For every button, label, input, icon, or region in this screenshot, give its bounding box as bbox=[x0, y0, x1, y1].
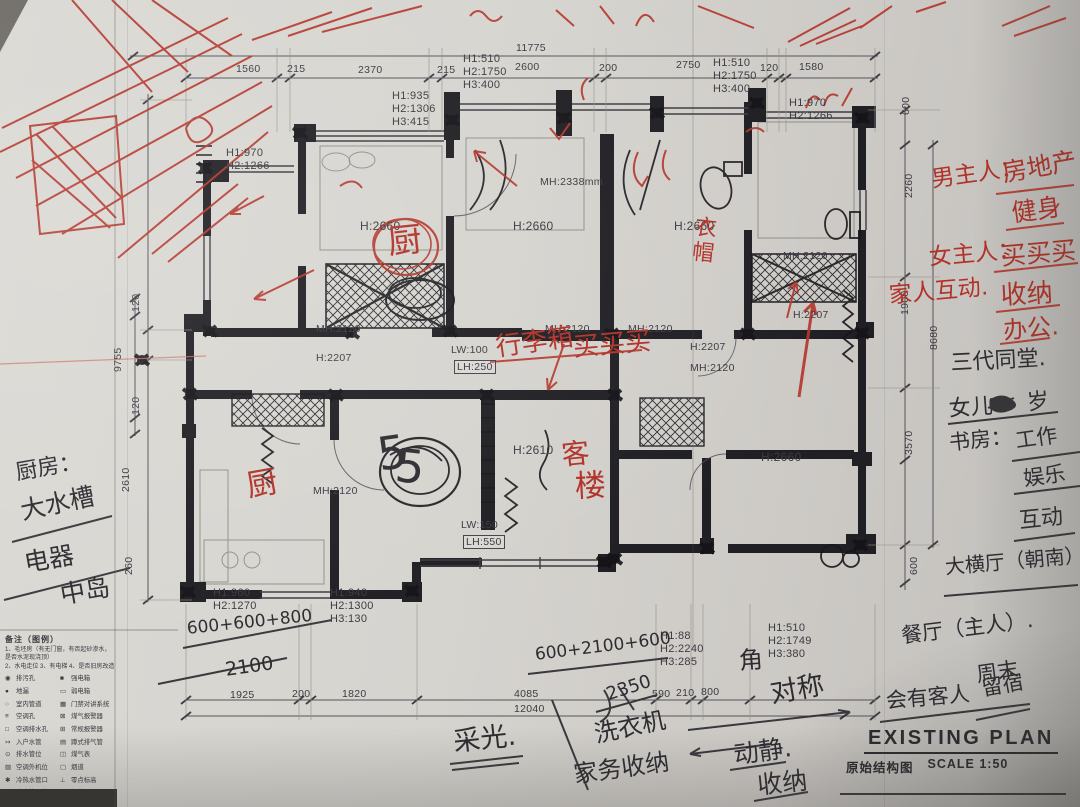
plan-dim-label: MH:2120 bbox=[783, 250, 828, 262]
legend-symbol-icon: ⊞ bbox=[60, 724, 69, 737]
plan-dim-label: H:2660 bbox=[761, 450, 802, 464]
legend-item-label: 空调外机位 bbox=[16, 762, 48, 774]
legend-item: ⊠煤气报警器 bbox=[60, 711, 115, 724]
plan-dim-label: H:2207 bbox=[793, 309, 829, 321]
legend-item: ▦门禁对讲系统 bbox=[60, 699, 115, 712]
legend-notes: 1、毛坯房（有无门窗，有否起砂渗水，是否水泥现浇顶）2、水电走位 3、有电梯 4… bbox=[5, 646, 115, 671]
handwritten-note-black: 女儿 bbox=[948, 395, 994, 423]
legend-column-left: ◉排污孔●地漏○室内管道≡空调孔□空调排水孔↣入户水管⊙排水管位▨空调外机位✱冷… bbox=[5, 673, 60, 807]
plan-dim-label: H:2660 bbox=[513, 219, 554, 233]
legend-item: ■强电箱 bbox=[60, 673, 115, 686]
plan-dim-label: MH:2338mm bbox=[540, 176, 603, 188]
legend-item-label: 空调孔 bbox=[16, 711, 35, 723]
plan-dim-label: 2610 bbox=[120, 467, 132, 492]
pencil-furniture bbox=[0, 122, 854, 630]
plan-dim-label: 120 bbox=[130, 397, 142, 415]
handwritten-note-black: 互动 bbox=[1018, 505, 1064, 534]
plan-dim-label: H1:510 H2:1750 H3:400 bbox=[713, 57, 757, 96]
legend-item: □空调排水孔 bbox=[5, 724, 60, 737]
plan-dim-label: LW:150 bbox=[461, 519, 498, 531]
plan-title-cn: 原始结构图 bbox=[846, 757, 914, 776]
plan-dim-label: 9755 bbox=[112, 347, 124, 372]
handwritten-note-red: 办公. bbox=[1002, 313, 1060, 345]
plan-dim-label: 2370 bbox=[358, 64, 383, 76]
legend-item: ◫煤气表 bbox=[60, 749, 115, 762]
legend-symbol-icon: ⊠ bbox=[60, 711, 69, 724]
handwritten-note-red: 厨 bbox=[386, 220, 424, 261]
legend-item: ◉排污孔 bbox=[5, 673, 60, 686]
legend-item: ▤蹲式排气管 bbox=[60, 737, 115, 750]
legend-item-label: 空调排水孔 bbox=[16, 724, 48, 736]
plan-dim-label: H1:510 H2:1750 H3:400 bbox=[463, 53, 507, 92]
title-block-rule bbox=[840, 793, 1066, 795]
plan-dim-label: LH:550 bbox=[464, 536, 504, 548]
legend-symbol-icon: □ bbox=[5, 724, 14, 737]
plan-title-en: EXISTING PLAN bbox=[864, 727, 1058, 754]
plan-dim-label: 1580 bbox=[799, 61, 824, 73]
plan-dim-label: 590 bbox=[652, 688, 670, 700]
legend-symbol-icon: ▢ bbox=[60, 762, 69, 775]
legend-item-label: 室内管道 bbox=[16, 699, 42, 711]
plan-dim-label: H:2610 bbox=[513, 443, 554, 457]
legend-symbol-icon: ↣ bbox=[5, 737, 14, 750]
plan-dim-label: MH:2120 bbox=[316, 323, 361, 335]
handwritten-note-red: 厨 bbox=[244, 465, 281, 505]
legend-item: ⊙排水管位 bbox=[5, 749, 60, 762]
handwritten-note-red: 收纳 bbox=[1000, 279, 1053, 311]
plan-dim-label: 2750 bbox=[676, 59, 701, 71]
legend-item-label: 零点标高 bbox=[71, 775, 97, 787]
legend-item: ▭弱电箱 bbox=[60, 686, 115, 699]
legend-item-label: 冷热水管口 bbox=[16, 775, 48, 787]
plan-dim-label: H1:970 H2:1266 bbox=[789, 97, 833, 123]
legend-item: ✱冷热水管口 bbox=[5, 775, 60, 788]
legend-item: ⊞常规报警器 bbox=[60, 724, 115, 737]
legend-item-label: 排污孔 bbox=[16, 673, 35, 685]
legend-symbol-icon: ✱ bbox=[5, 775, 14, 788]
plan-dim-label: 600 bbox=[900, 97, 912, 115]
legend-symbol-icon: ⊥ bbox=[60, 775, 69, 788]
handwritten-note-red: 楼 bbox=[574, 468, 607, 504]
legend-item: ⊥零点标高 bbox=[60, 775, 115, 788]
legend-item: ○室内管道 bbox=[5, 699, 60, 712]
legend-item-label: 排水管位 bbox=[16, 749, 42, 761]
legend-symbol-icon: ▭ bbox=[60, 686, 69, 699]
plan-dim-label: MH:2120 bbox=[690, 362, 735, 374]
plan-dim-label: 3570 bbox=[903, 430, 915, 455]
legend-item: ●地漏 bbox=[5, 686, 60, 699]
photo-surface: 1177515602152370215H1:510 H2:1750 H3:400… bbox=[0, 0, 1080, 807]
legend-item-label: 强电箱 bbox=[71, 673, 90, 685]
plan-dim-label: 210 bbox=[676, 687, 694, 699]
plan-dim-label: H1:510 H2:1749 H3:380 bbox=[768, 622, 812, 661]
plan-dim-label: 215 bbox=[437, 64, 455, 76]
title-block: EXISTING PLAN 原始结构图 SCALE 1:50 bbox=[846, 727, 1078, 776]
plan-dim-label: H1:940 H2:1300 H3:130 bbox=[330, 587, 374, 626]
legend-note: 1、毛坯房（有无门窗，有否起砂渗水，是否水泥现浇顶） bbox=[5, 646, 115, 662]
plan-dim-label: 2600 bbox=[515, 61, 540, 73]
legend-symbol-icon: ● bbox=[5, 686, 14, 699]
legend-item-label: 煤气表 bbox=[71, 749, 90, 761]
plan-dim-label: 4085 bbox=[514, 688, 539, 700]
plan-dim-label: 1925 bbox=[230, 689, 255, 701]
plan-dim-label: H:2207 bbox=[690, 341, 726, 353]
legend-symbol-icon: ▦ bbox=[60, 699, 69, 712]
legend-item: ≡空调孔 bbox=[5, 711, 60, 724]
plan-dim-label: H1:960 H2:1270 bbox=[213, 587, 257, 613]
plan-dim-label: 260 bbox=[123, 557, 135, 575]
legend-item: ↣入户水管 bbox=[5, 737, 60, 750]
legend-symbol-icon: ≡ bbox=[5, 711, 14, 724]
handwritten-note-black: 收纳 bbox=[756, 767, 809, 800]
legend-item-label: 煤气报警器 bbox=[71, 711, 103, 723]
legend-symbol-icon: ○ bbox=[5, 699, 14, 712]
plan-dim-label: 215 bbox=[287, 63, 305, 75]
legend-block: 备注（图例） 1、毛坯房（有无门窗，有否起砂渗水，是否水泥现浇顶）2、水电走位 … bbox=[5, 634, 115, 807]
legend-note: 2、水电走位 3、有电梯 4、是否旧房改造 bbox=[5, 663, 115, 671]
plan-dim-label: 120 bbox=[130, 294, 142, 312]
plan-dim-label: 11775 bbox=[516, 42, 546, 54]
photo-bottom-shadow bbox=[0, 789, 117, 807]
legend-symbol-icon: ◫ bbox=[60, 749, 69, 762]
handwritten-note-black: 三代同堂. bbox=[950, 347, 1046, 377]
legend-column-right: ■强电箱▭弱电箱▦门禁对讲系统⊠煤气报警器⊞常规报警器▤蹲式排气管◫煤气表▢烟道… bbox=[60, 673, 115, 807]
plan-dim-label: 1820 bbox=[342, 688, 367, 700]
legend-item-label: 门禁对讲系统 bbox=[71, 699, 109, 711]
handwritten-note-black: 角 bbox=[738, 646, 764, 674]
plan-dim-label: 200 bbox=[599, 62, 617, 74]
legend-item-label: 入户水管 bbox=[16, 737, 42, 749]
plan-dim-label: MH:2120 bbox=[313, 485, 358, 497]
plan-dim-label: H1:970 H2:1266 bbox=[226, 147, 270, 173]
plan-dim-label: 2260 bbox=[903, 173, 915, 198]
legend-item-label: 常规报警器 bbox=[71, 724, 103, 736]
plan-dim-label: 120 bbox=[760, 62, 778, 74]
legend-item: ▢烟道 bbox=[60, 762, 115, 775]
plan-dim-label: LH:250 bbox=[455, 361, 495, 373]
legend-symbol-icon: ⊙ bbox=[5, 749, 14, 762]
legend-symbol-icon: ▨ bbox=[5, 762, 14, 775]
plan-dim-label: 12040 bbox=[514, 703, 545, 715]
handwritten-note-black: 岁 bbox=[1026, 390, 1050, 417]
legend-symbol-icon: ■ bbox=[60, 673, 69, 686]
plan-dim-label: 800 bbox=[701, 686, 719, 698]
legend-symbol-icon: ▤ bbox=[60, 737, 69, 750]
legend-item-label: 蹲式排气管 bbox=[71, 737, 103, 749]
handwritten-note-red: 客 bbox=[560, 437, 591, 471]
plan-dim-label: 200 bbox=[292, 688, 310, 700]
legend-item-label: 烟道 bbox=[71, 762, 84, 774]
handwritten-note-black: 5 bbox=[393, 440, 428, 494]
plan-dim-label: 600 bbox=[908, 557, 920, 575]
plan-scale: SCALE 1:50 bbox=[928, 757, 1009, 776]
legend-symbol-icon: ◉ bbox=[5, 673, 14, 686]
legend-item: ▨空调外机位 bbox=[5, 762, 60, 775]
plan-dim-label: H:2207 bbox=[316, 352, 352, 364]
legend-item-label: 地漏 bbox=[16, 686, 29, 698]
legend-item-label: 弱电箱 bbox=[71, 686, 90, 698]
plan-dim-label: 1560 bbox=[236, 63, 261, 75]
plan-dim-label: 8680 bbox=[928, 325, 940, 350]
legend-heading: 备注（图例） bbox=[5, 634, 115, 645]
plan-dim-label: H1:935 H2:1306 H3:415 bbox=[392, 90, 436, 129]
plan-dim-label: LW:100 bbox=[451, 344, 488, 356]
